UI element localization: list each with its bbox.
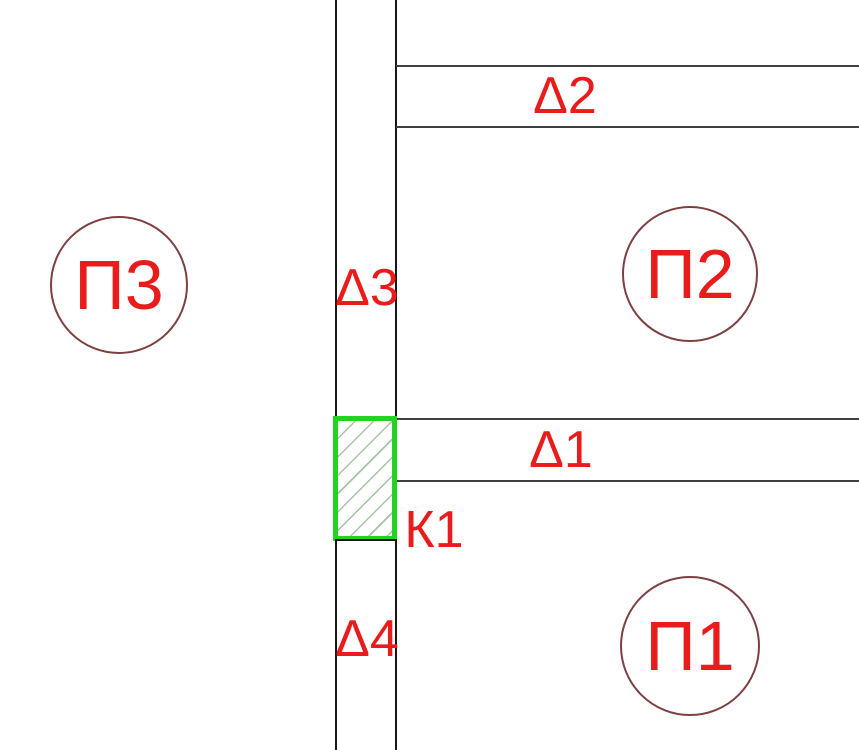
corridor-label-d4: Δ4 — [335, 613, 399, 665]
room-marker-circle-p1: П1 — [620, 576, 760, 716]
room-marker-label-p2: П2 — [645, 239, 734, 309]
room-marker-label-p1: П1 — [645, 611, 734, 681]
element-label-k1: К1 — [404, 504, 463, 556]
corridor-label-d3: Δ3 — [335, 262, 399, 314]
corridor-label-d1: Δ1 — [529, 424, 593, 476]
room-marker-circle-p2: П2 — [622, 206, 758, 342]
highlighted-hatched-element-k1[interactable] — [333, 416, 397, 541]
corridor-d1-bottom-line — [396, 480, 859, 482]
corridor-d2-bottom-line — [396, 126, 859, 128]
room-marker-circle-p3: П3 — [50, 216, 188, 354]
room-marker-label-p3: П3 — [74, 250, 163, 320]
corridor-d2-top-line — [396, 65, 859, 67]
corridor-d1-top-line — [396, 418, 859, 420]
wall-segment-below-element — [335, 539, 397, 541]
corridor-label-d2: Δ2 — [533, 70, 597, 122]
floor-plan-canvas: Δ2 Δ3 Δ1 Δ4 К1 П3 П2 П1 — [0, 0, 859, 750]
